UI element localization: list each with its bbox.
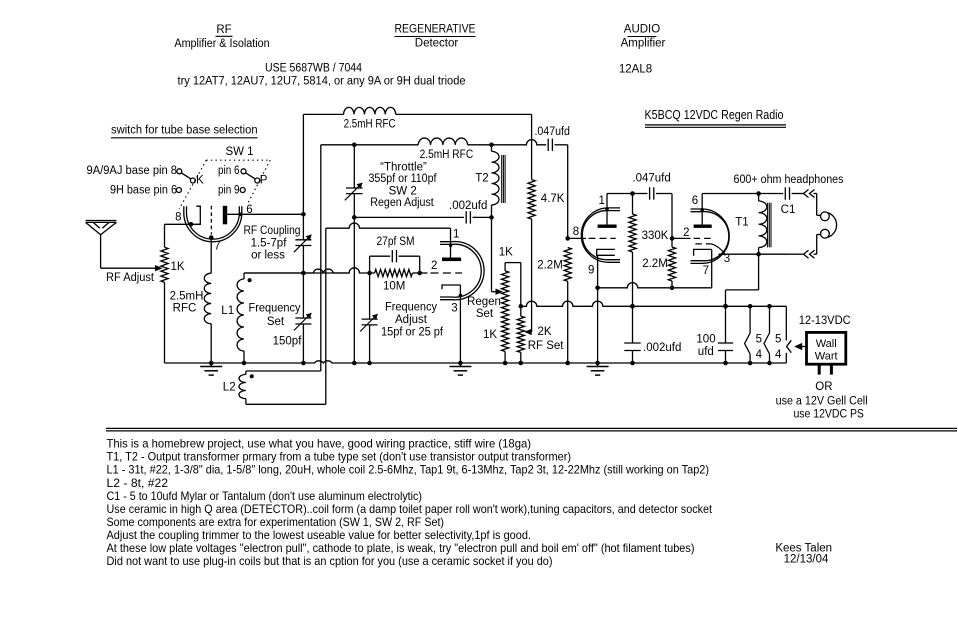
svg-text:T1: T1: [735, 217, 748, 229]
svg-text:use a 12V Gell Cell: use a 12V Gell Cell: [776, 395, 868, 407]
svg-text:Wart: Wart: [815, 351, 838, 363]
svg-text:4: 4: [756, 349, 763, 361]
svg-text:Detector: Detector: [415, 38, 459, 50]
svg-text:2.2M: 2.2M: [537, 259, 563, 271]
svg-text:switch for tube base selection: switch for tube base selection: [111, 125, 258, 137]
svg-text:.002ufd: .002ufd: [643, 342, 681, 354]
svg-text:RFC: RFC: [173, 303, 197, 315]
svg-text:2.5mH: 2.5mH: [170, 291, 204, 303]
svg-text:This is a homebrew project, us: This is a homebrew project, use what you…: [107, 438, 532, 451]
svg-text:try 12AT7, 12AU7, 12U7, 5814,: try 12AT7, 12AU7, 12U7, 5814, or any 9A …: [178, 76, 466, 88]
svg-text:9: 9: [588, 265, 594, 277]
svg-text:5: 5: [775, 334, 781, 346]
svg-text:.002ufd: .002ufd: [449, 200, 487, 212]
svg-text:8: 8: [573, 226, 579, 238]
svg-text:SW 2: SW 2: [389, 185, 417, 197]
svg-text:3: 3: [451, 303, 457, 315]
svg-text:12AL8: 12AL8: [619, 64, 652, 76]
svg-text:1K: 1K: [171, 261, 185, 273]
svg-text:7: 7: [214, 240, 220, 252]
svg-text:REGENERATIVE: REGENERATIVE: [395, 24, 476, 36]
svg-text:Regen Adjust: Regen Adjust: [370, 197, 434, 209]
svg-text:RF Adjust: RF Adjust: [106, 272, 155, 284]
svg-text:10M: 10M: [383, 280, 405, 292]
svg-text:pin 6: pin 6: [218, 165, 240, 177]
svg-text:1: 1: [598, 195, 604, 207]
svg-text:K5BCQ 12VDC Regen Radio: K5BCQ 12VDC Regen Radio: [645, 108, 784, 122]
svg-text:L1: L1: [221, 305, 234, 317]
svg-text:Set: Set: [267, 316, 285, 328]
svg-text:“Throttle”: “Throttle”: [380, 161, 427, 173]
svg-text:1K: 1K: [483, 329, 497, 341]
svg-text:Regen: Regen: [467, 296, 501, 308]
svg-text:4: 4: [775, 349, 782, 361]
svg-text:12-13VDC: 12-13VDC: [799, 315, 851, 327]
svg-text:Amplifier & Isolation: Amplifier & Isolation: [174, 38, 269, 50]
svg-text:C1: C1: [781, 204, 796, 216]
svg-text:L1 - 31t, #22, 1-3/8" dia, 1-5: L1 - 31t, #22, 1-3/8" dia, 1-5/8" long, …: [107, 464, 710, 477]
svg-text:Adjust: Adjust: [395, 314, 428, 326]
svg-text:2: 2: [431, 260, 437, 272]
svg-text:7: 7: [703, 265, 709, 277]
svg-text:use 12VDC PS: use 12VDC PS: [793, 408, 864, 420]
svg-text:2.5mH RFC: 2.5mH RFC: [420, 149, 474, 161]
svg-text:6: 6: [692, 195, 698, 207]
svg-text:330K: 330K: [642, 230, 669, 242]
svg-text:OR: OR: [815, 381, 832, 393]
svg-text:pin 9: pin 9: [218, 184, 240, 196]
svg-text:9H base pin 6: 9H base pin 6: [110, 184, 177, 196]
svg-text:Adjust the coupling trimmer to: Adjust the coupling trimmer to the lowes…: [107, 529, 532, 542]
svg-text:1K: 1K: [499, 246, 513, 258]
svg-text:Set: Set: [476, 308, 494, 320]
svg-text:T1, T2 - Output transformer pr: T1, T2 - Output transformer prmary from …: [107, 451, 572, 464]
svg-text:9A/9AJ base pin 8: 9A/9AJ base pin 8: [87, 165, 178, 177]
svg-text:RF Coupling: RF Coupling: [244, 225, 301, 237]
svg-text:L2: L2: [223, 382, 236, 394]
svg-text:15pf or 25 pf: 15pf or 25 pf: [381, 326, 444, 338]
svg-text:2K: 2K: [538, 326, 552, 338]
svg-text:T2: T2: [475, 172, 488, 184]
svg-text:ufd: ufd: [698, 346, 714, 358]
svg-text:RF: RF: [216, 24, 231, 36]
svg-text:8: 8: [175, 211, 181, 223]
svg-text:355pf or 110pf: 355pf or 110pf: [369, 173, 438, 185]
svg-text:P: P: [260, 175, 268, 187]
svg-text:L2 - 8t, #22: L2 - 8t, #22: [107, 477, 169, 490]
svg-text:USE 5687WB / 7044: USE 5687WB / 7044: [265, 63, 363, 75]
svg-text:Frequency: Frequency: [249, 302, 301, 314]
svg-text:.047ufd: .047ufd: [534, 126, 570, 138]
svg-text:Did not want to use plug-in co: Did not want to use plug-in coils but th…: [107, 555, 553, 568]
svg-text:2.2M: 2.2M: [642, 258, 668, 270]
svg-text:AUDIO: AUDIO: [624, 24, 660, 36]
svg-text:Wall: Wall: [816, 338, 837, 350]
svg-text:C1 - 5 to 10ufd Mylar or Tanta: C1 - 5 to 10ufd Mylar or Tantalum (don't…: [107, 490, 423, 503]
svg-text:K: K: [196, 175, 204, 187]
svg-text:SW 1: SW 1: [225, 146, 253, 158]
svg-text:.047ufd: .047ufd: [632, 173, 670, 185]
svg-text:1.5-7pf: 1.5-7pf: [251, 237, 288, 249]
svg-text:4.7K: 4.7K: [541, 193, 565, 205]
svg-text:27pf SM: 27pf SM: [377, 236, 415, 248]
svg-text:Frequency: Frequency: [385, 302, 437, 314]
svg-text:5: 5: [756, 334, 762, 346]
svg-text:RF Set: RF Set: [528, 340, 565, 352]
svg-text:At these low plate voltages "e: At these low plate voltages "electron pu…: [107, 542, 695, 555]
svg-text:2.5mH RFC: 2.5mH RFC: [344, 118, 396, 130]
svg-text:1: 1: [453, 229, 459, 241]
svg-text:or less: or less: [251, 249, 285, 261]
svg-text:150pf: 150pf: [273, 335, 303, 347]
svg-text:Amplifier: Amplifier: [621, 38, 666, 50]
svg-text:2: 2: [683, 227, 689, 239]
svg-text:Some components are extra for: Some components are extra for experiment…: [107, 516, 445, 529]
svg-text:100: 100: [696, 334, 715, 346]
svg-text:Use ceramic in high Q area (DE: Use ceramic in high Q area (DETECTOR)..c…: [107, 503, 713, 516]
svg-text:12/13/04: 12/13/04: [784, 554, 829, 566]
svg-text:600+ ohm headphones: 600+ ohm headphones: [734, 174, 844, 186]
